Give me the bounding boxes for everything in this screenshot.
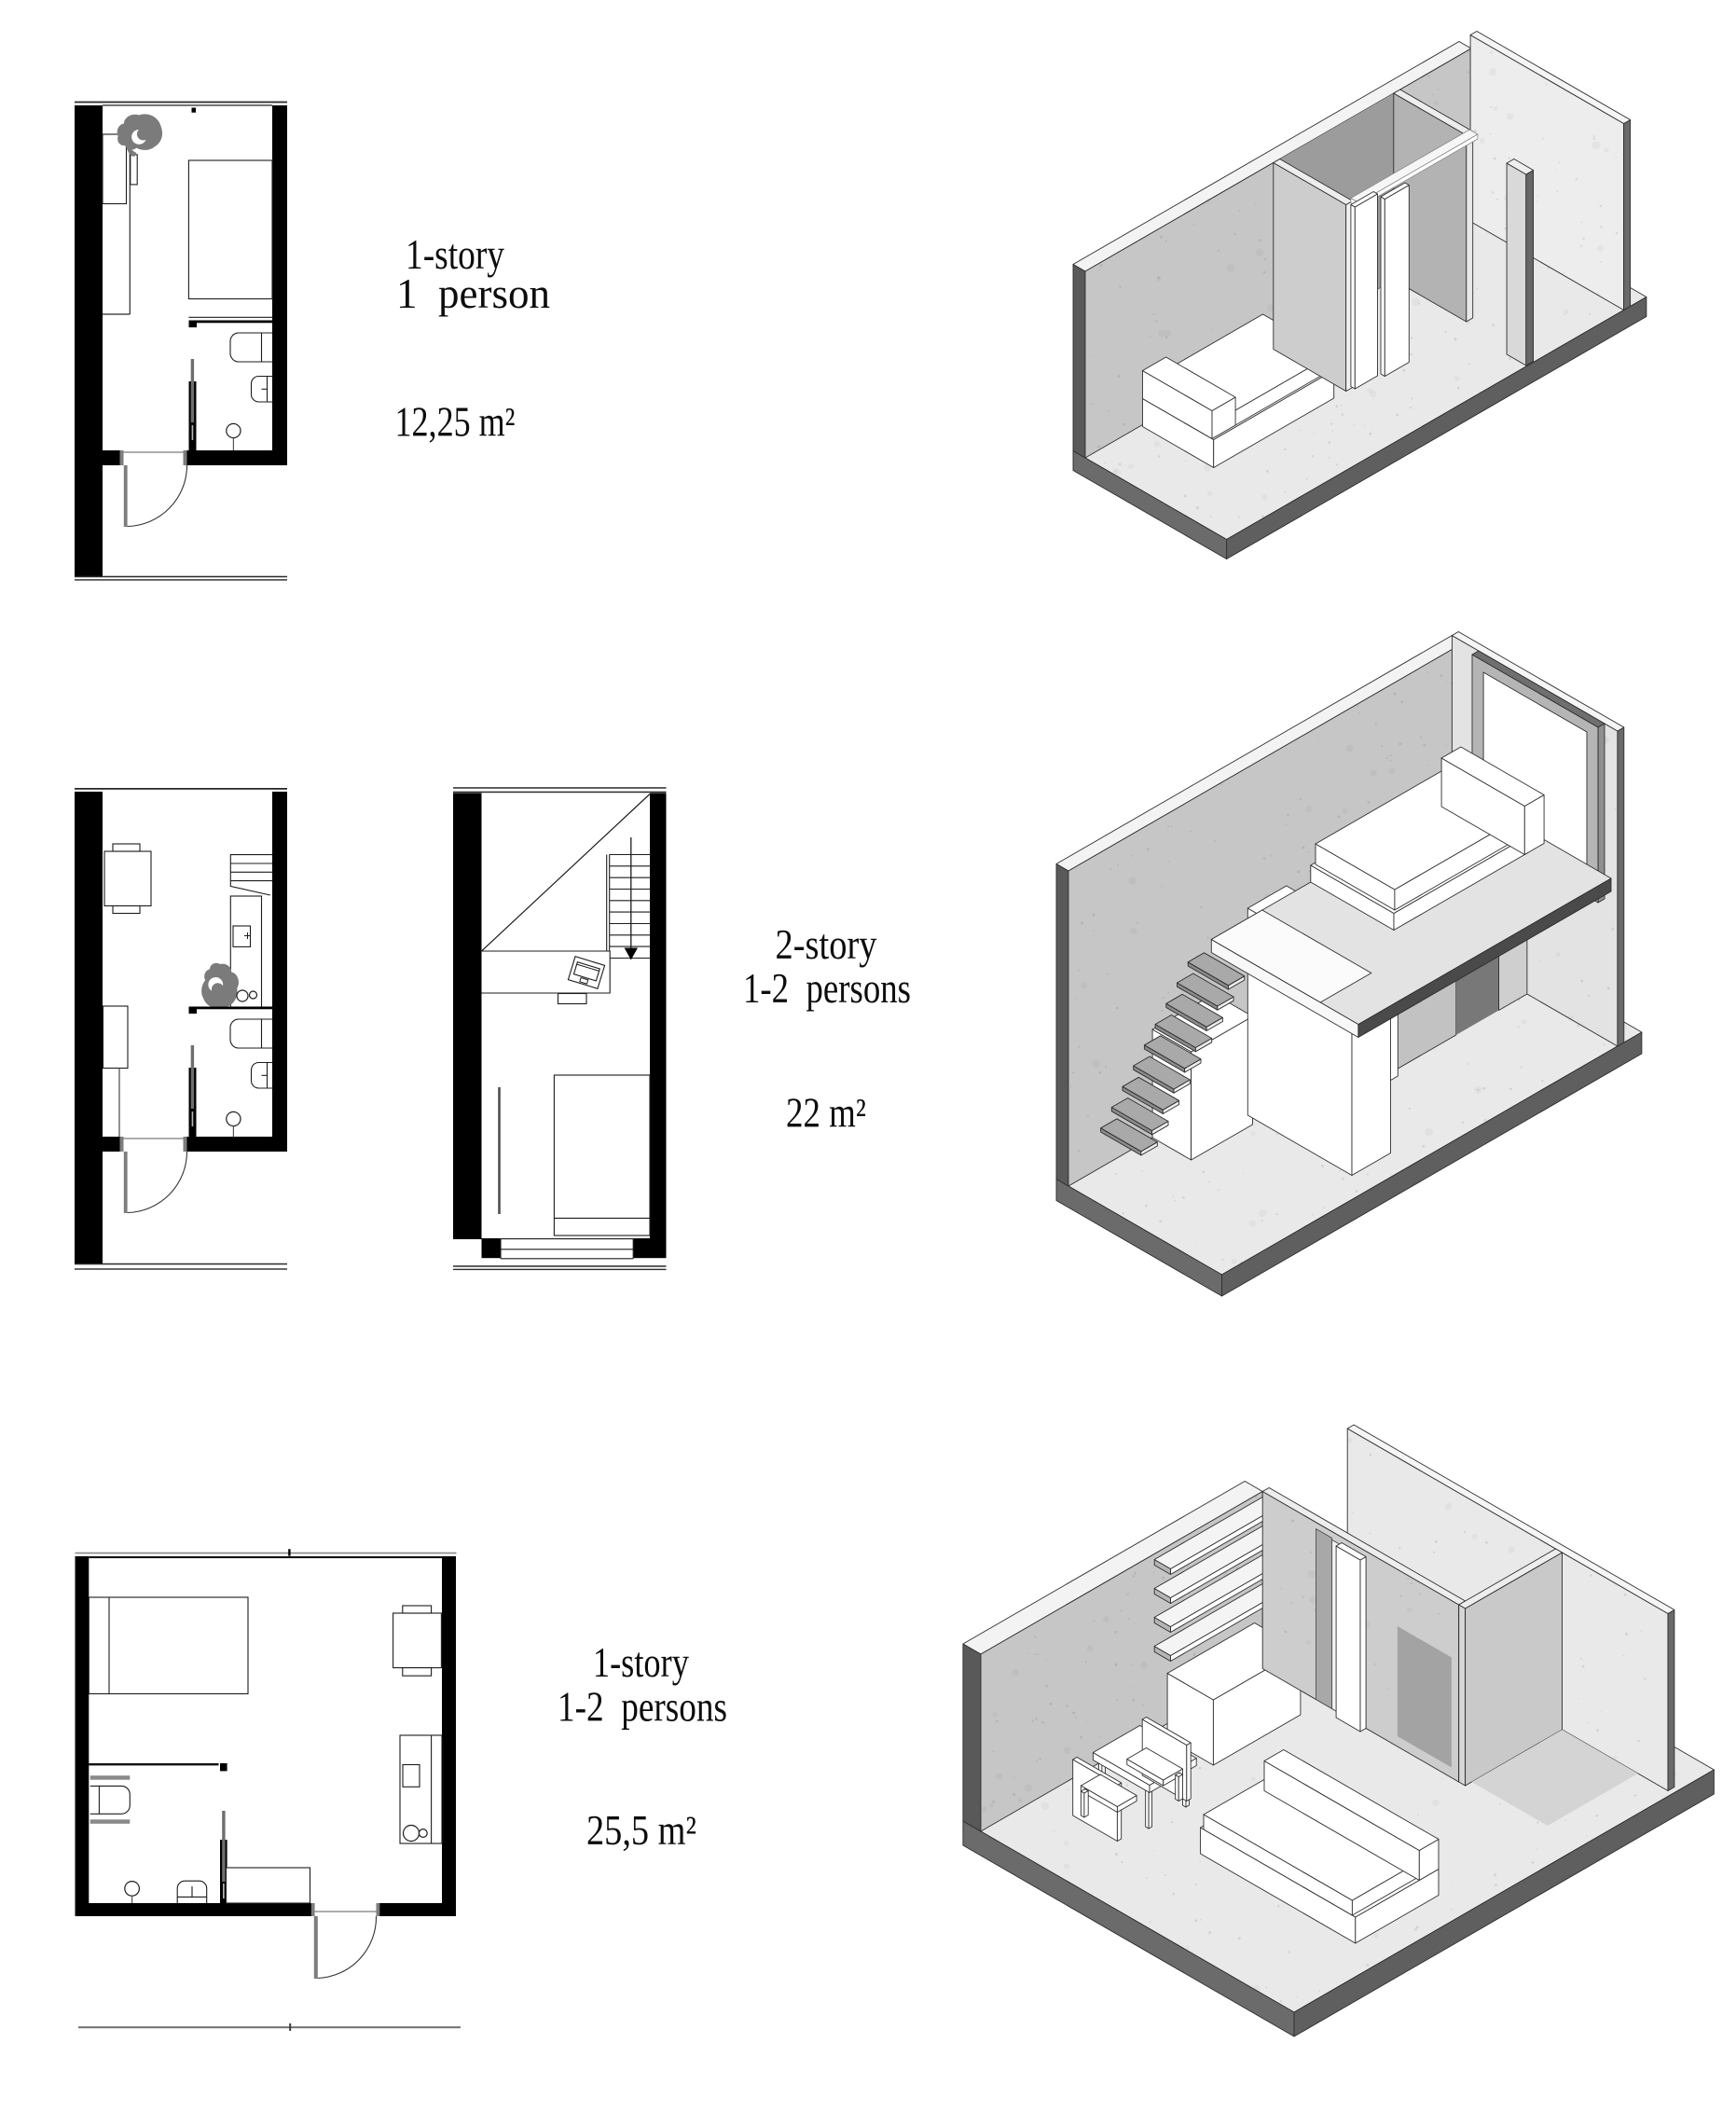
- svg-text:1-story: 1-story: [593, 1639, 689, 1686]
- svg-text:1 person: 1 person: [396, 270, 550, 317]
- svg-text:2-story: 2-story: [776, 921, 877, 968]
- svg-text:12,25 m²: 12,25 m²: [395, 399, 516, 446]
- svg-text:1-2 persons: 1-2 persons: [558, 1684, 727, 1731]
- svg-text:22 m²: 22 m²: [786, 1090, 866, 1137]
- svg-text:25,5 m²: 25,5 m²: [586, 1807, 696, 1854]
- svg-text:1-2 persons: 1-2 persons: [743, 965, 911, 1012]
